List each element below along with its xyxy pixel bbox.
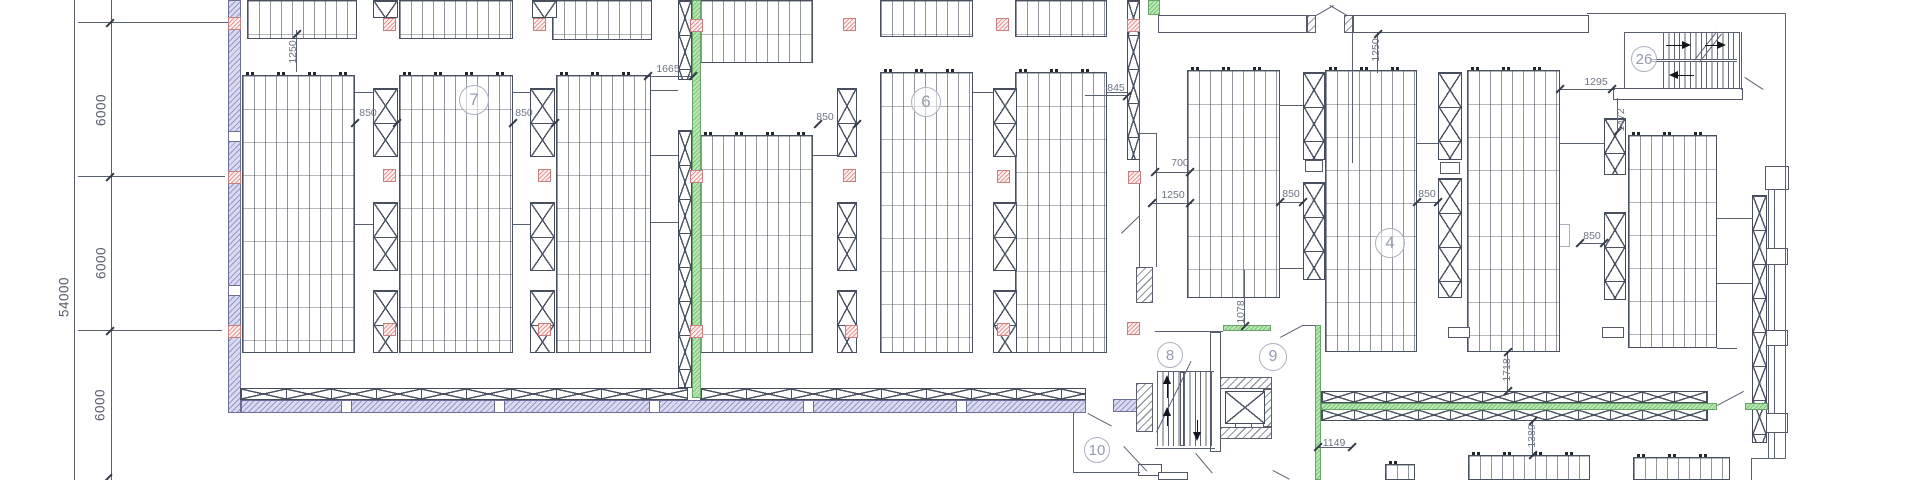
braced-column-strip [1604,212,1626,300]
partition-wall [1613,88,1743,100]
drawing-line [1739,32,1740,88]
drawing-line [651,155,678,156]
wall-opening [228,285,241,296]
room-number: 6 [911,87,941,117]
dimension-label: 850 [515,108,533,119]
wall-opening [803,400,814,413]
drawing-line [1272,470,1289,480]
storage-rack [1187,70,1280,298]
drawing-line [1624,32,1625,88]
shaft-wall [1136,267,1153,303]
drawing-line [1417,143,1438,144]
drawing-line [111,0,112,480]
structural-column [845,325,858,338]
fire-wall [692,0,701,398]
drawing-line [1329,5,1347,16]
drawing-line [1774,346,1775,413]
dimension-label: 1472 [1616,108,1627,131]
stair-direction-arrow [1666,41,1694,50]
shaft-wall [1307,15,1316,33]
stair-direction-arrow [1193,420,1202,444]
structural-column [843,169,856,182]
braced-wall-band [240,388,688,400]
drawing-line [513,224,530,225]
structural-column [1127,322,1140,335]
floor-plan-drawing: +4,000 540006000600060001250850850166585… [0,0,1920,480]
room-number: 10 [1084,437,1110,463]
arrow-head [1666,71,1678,79]
dimension-label: 6000 [93,389,107,421]
drawing-line [1717,391,1744,406]
braced-column-strip [1438,178,1462,298]
drawing-line [1768,346,1769,413]
drawing-line [1303,325,1315,326]
storage-rack [1633,457,1730,480]
drawing-line [513,92,530,93]
arrow-head [1193,432,1201,444]
braced-wall-band [1321,409,1708,421]
wall-opening [494,400,505,413]
drawing-line [1717,283,1752,284]
structural-column [690,170,703,183]
storage-rack [880,0,973,37]
dimension-label: 1250 [288,40,299,63]
storage-rack [247,0,357,39]
partition-wall [1158,472,1188,480]
drawing-line [1774,433,1775,458]
stair-direction-arrow [1163,372,1172,398]
room-number: 26 [1631,46,1657,72]
structural-column [690,325,703,338]
drawing-line [1085,95,1127,96]
partition-wall [1158,15,1307,33]
braced-column-strip [373,0,398,18]
storage-rack [399,0,513,39]
stair-direction-arrow [1163,404,1172,426]
braced-column-strip [530,202,555,271]
drawing-line [1560,143,1604,144]
drawing-line [78,330,222,331]
drawing-line [1280,325,1304,338]
drawing-line [1280,105,1303,106]
shaft-wall [1220,427,1272,439]
shaft-wall [1136,383,1153,432]
fire-wall [1148,0,1160,15]
dimension-label: 6000 [94,94,108,126]
dimension-label: 850 [1282,189,1300,200]
drawing-line [1744,77,1763,90]
shaft-wall [1220,377,1272,389]
drawing-line [1768,190,1769,248]
structural-column [1128,171,1141,184]
room-number: 8 [1157,342,1183,368]
drawing-line [1138,133,1157,134]
structural-column [228,17,241,30]
storage-rack [242,75,355,353]
dimension-label: 1718 [1502,358,1513,381]
storage-rack [1325,70,1417,352]
dimension-label: 54000 [57,277,71,317]
structural-column [843,18,856,31]
braced-column-strip [1438,72,1462,160]
drawing-line [1751,458,1752,480]
drawing-line [651,222,678,223]
drawing-line [1774,190,1775,248]
wall-opening [228,131,241,142]
fire-wall [1321,403,1717,410]
drawing-line [1155,331,1223,332]
braced-column-strip [532,0,557,18]
dimension-label: 1389 [1527,424,1538,447]
braced-column-strip [373,202,398,271]
drawing-line [1280,268,1303,269]
partition-wall [1602,327,1624,338]
storage-rack [556,75,651,353]
braced-column-strip [530,88,555,157]
drawing-line [1741,32,1742,90]
arrow-head [1717,41,1729,49]
dimension-label: 1149 [1323,438,1346,449]
drawing-line [78,22,241,23]
fire-wall [1745,403,1768,410]
drawing-line [973,92,993,93]
partition-wall [1305,160,1323,172]
braced-column-strip [678,0,692,80]
braced-column-strip [373,290,398,353]
structural-column [383,323,396,336]
partition-wall [1353,15,1589,33]
braced-column-strip [530,290,555,353]
drawing-line [1785,13,1786,458]
dimension-label: 850 [359,108,377,119]
drawing-line [1087,413,1111,427]
drawing-line [651,90,678,91]
drawing-line [1774,265,1775,330]
storage-rack [1467,70,1560,352]
structural-column [997,323,1010,336]
partition-wall [1440,162,1460,174]
structural-column [228,325,241,338]
arrow-head [1163,372,1171,384]
dimension-label: 850 [816,112,834,123]
partition-wall [1448,327,1470,338]
dimension-label: 850 [1583,231,1601,242]
dimension-tick [1347,442,1356,451]
arrow-head [1163,404,1171,416]
shaft-wall [1344,15,1353,33]
drawing-line [1121,216,1140,234]
exterior-wall [228,0,241,413]
room-number: 7 [459,85,489,115]
dimension-label: 1665 [656,64,679,75]
structural-column [690,19,703,32]
storage-rack [700,135,813,353]
braced-wall-band [700,388,1086,400]
fire-wall [1223,325,1271,331]
drawing-line [1352,33,1353,163]
structural-column [228,171,241,184]
storage-rack [552,0,652,40]
structural-column [533,18,546,31]
dimension-label: 1295 [1584,77,1607,88]
storage-rack [700,0,813,63]
storage-rack [399,75,513,353]
dimension-label: 1250 [1161,190,1184,201]
drawing-line [1073,412,1074,473]
drawing-line [78,176,225,177]
dimension-label: 1078 [1236,300,1247,323]
arrow-head [1682,41,1694,49]
drawing-line [1768,433,1769,458]
wall-opening [956,400,967,413]
braced-column-strip [1303,72,1325,160]
drawing-line [645,76,693,77]
stair-direction-arrow [1666,71,1694,80]
storage-rack [1628,135,1717,348]
elevator-car [1225,391,1265,424]
braced-wall-band [1321,391,1708,403]
structural-column [383,18,396,31]
drawing-line [1195,453,1213,474]
drawing-line [1717,348,1737,349]
drawing-line [813,155,837,156]
braced-column-strip [993,88,1017,157]
braced-column-strip [993,290,1017,353]
drawing-line [355,224,373,225]
structural-column [538,323,551,336]
dimension-label: 845 [1107,83,1125,94]
drawing-line [1139,35,1140,267]
braced-column-strip [837,88,857,157]
drawing-line [1123,446,1147,472]
structural-column [996,18,1009,31]
drawing-line [355,92,373,93]
storage-rack [1015,0,1107,37]
dimension-label: 6000 [94,247,108,279]
drawing-line [74,0,75,480]
drawing-line [1587,13,1786,14]
room-number: 4 [1375,228,1405,258]
drawing-line [1074,472,1140,473]
drawing-line [1768,265,1769,330]
drawing-line [1155,172,1190,173]
stair-direction-arrow [1705,41,1729,50]
dimension-label: 700 [1171,158,1189,169]
storage-rack [1385,464,1415,480]
structural-column [1127,19,1140,32]
braced-column-strip [993,202,1017,271]
dimension-label: 850 [1418,189,1436,200]
wall-opening [649,400,660,413]
braced-column-strip [837,202,857,271]
structural-column [997,170,1010,183]
drawing-line [1752,458,1786,459]
room-number: 9 [1259,343,1287,371]
drawing-line [1155,448,1215,449]
braced-column-strip [837,290,857,353]
structural-column [383,169,396,182]
dimension-label: 1250 [1371,38,1382,61]
storage-rack [1015,72,1107,353]
braced-column-strip [678,130,692,388]
wall-opening [341,400,352,413]
structural-column [538,169,551,182]
drawing-line [1717,218,1752,219]
drawing-line [1560,89,1615,90]
